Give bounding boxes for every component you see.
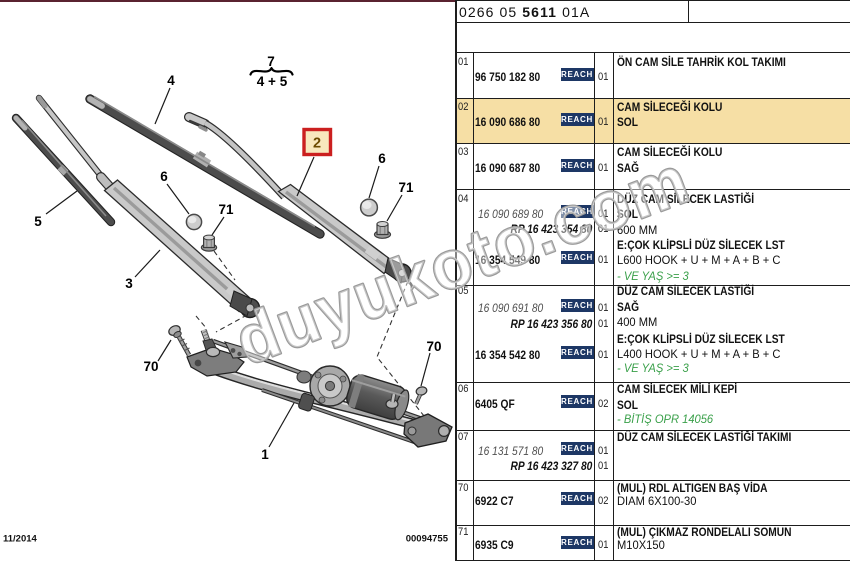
svg-text:duyukoto.com: duyukoto.com [225,141,700,381]
